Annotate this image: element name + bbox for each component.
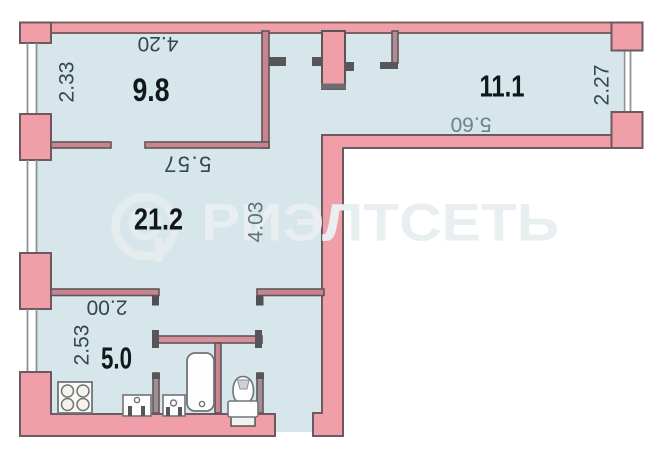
svg-text:5.57: 5.57 [163,152,212,177]
svg-text:2.53: 2.53 [71,325,94,366]
svg-text:9.8: 9.8 [133,72,170,108]
svg-text:2.33: 2.33 [56,62,79,103]
svg-text:2.00: 2.00 [87,296,128,319]
svg-text:21.2: 21.2 [134,202,183,237]
svg-text:2.27: 2.27 [591,65,614,106]
svg-text:4.20: 4.20 [138,32,179,55]
svg-text:5.60: 5.60 [451,113,492,136]
svg-text:5.0: 5.0 [101,341,132,376]
svg-text:4.03: 4.03 [245,202,268,243]
svg-text:11.1: 11.1 [480,69,525,104]
